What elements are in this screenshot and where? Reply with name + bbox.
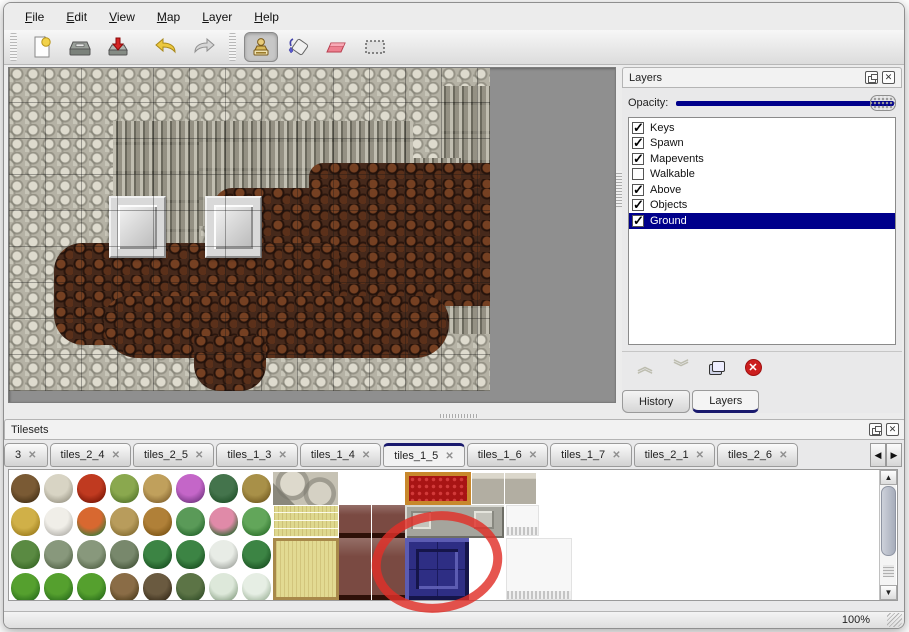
scroll-down-icon[interactable]: ▼ <box>880 585 897 600</box>
save-button[interactable] <box>101 32 135 62</box>
tilesets-panel-title: Tilesets <box>11 424 49 436</box>
select-tool-icon <box>361 35 389 59</box>
sprouts-tile[interactable] <box>9 538 42 571</box>
tilesets-panel-titlebar: Tilesets ✕ <box>4 419 905 440</box>
snow-mound-tile[interactable] <box>42 505 75 538</box>
move-layer-down-button[interactable]: ︾ <box>670 357 692 379</box>
map-grid-overlay <box>9 68 490 391</box>
close-tab-icon[interactable]: ✕ <box>195 450 203 461</box>
layer-row-keys[interactable]: Keys <box>629 120 895 136</box>
stamp-tool-icon <box>249 35 273 59</box>
close-tab-icon[interactable]: ✕ <box>445 451 453 462</box>
dark-tree-tile[interactable] <box>141 571 174 601</box>
layer-row-spawn[interactable]: Spawn <box>629 136 895 152</box>
dry-tuft-tile[interactable] <box>108 505 141 538</box>
layer-name: Walkable <box>650 168 695 180</box>
menu-map[interactable]: Map <box>148 6 189 28</box>
tileset-tab-label: tiles_1_6 <box>478 449 522 461</box>
toolbar <box>4 30 904 65</box>
duplicate-layer-icon <box>709 361 725 375</box>
tileset-tab-tiles_1_3[interactable]: tiles_1_3✕ <box>216 443 297 467</box>
dead-tree-tile[interactable] <box>9 472 42 505</box>
undo-icon <box>153 35 179 59</box>
tileset-tab-tiles_1_4[interactable]: tiles_1_4✕ <box>300 443 381 467</box>
opacity-row: Opacity: <box>628 93 896 113</box>
layer-list: Keys Spawn Mapevents Walkable Above Obje… <box>628 117 896 345</box>
scroll-up-icon[interactable]: ▲ <box>880 470 897 485</box>
white-curtain-tile[interactable] <box>506 538 572 600</box>
twisted-tree-tile[interactable] <box>108 571 141 601</box>
layer-row-mapevents[interactable]: Mapevents <box>629 151 895 167</box>
layer-name: Ground <box>650 215 687 227</box>
close-tab-icon[interactable]: ✕ <box>529 450 537 461</box>
scrollbar-thumb[interactable] <box>881 486 896 556</box>
open-button[interactable] <box>63 32 97 62</box>
layers-panel-titlebar: Layers ✕ <box>622 67 902 88</box>
close-tab-icon[interactable]: ✕ <box>278 450 286 461</box>
menu-help[interactable]: Help <box>245 6 288 28</box>
select-tool-button[interactable] <box>358 32 392 62</box>
close-tab-icon[interactable]: ✕ <box>112 450 120 461</box>
tileset-tab-label: tiles_2_5 <box>144 449 188 461</box>
dry-plant-tile[interactable] <box>240 472 273 505</box>
delete-layer-button[interactable]: ✕ <box>742 357 764 379</box>
resize-grip-icon[interactable] <box>887 613 902 627</box>
tatami-border-tile[interactable] <box>273 538 339 600</box>
undo-button[interactable] <box>149 32 183 62</box>
menu-layer[interactable]: Layer <box>193 6 241 28</box>
menu-bar: File Edit View Map Layer Help <box>4 3 904 30</box>
layer-visibility-checkbox[interactable] <box>632 215 644 227</box>
stamp-tool-button[interactable] <box>244 32 278 62</box>
close-tab-icon[interactable]: ✕ <box>362 450 370 461</box>
white-curtain-tile[interactable] <box>506 505 539 536</box>
tileset-scrollbar[interactable]: ▲ ▼ <box>879 470 896 600</box>
layers-panel-title: Layers <box>629 72 662 84</box>
move-layer-up-icon: ︽ <box>637 363 652 373</box>
layer-visibility-checkbox[interactable] <box>632 153 644 165</box>
status-bar: 100% <box>4 611 904 628</box>
eraser-tool-button[interactable] <box>320 32 354 62</box>
close-tab-icon[interactable]: ✕ <box>28 450 36 461</box>
tileset-view[interactable]: ▲ ▼ <box>8 469 898 601</box>
layer-name: Keys <box>650 122 674 134</box>
purple-bush-tile[interactable] <box>174 472 207 505</box>
tab-layers[interactable]: Layers <box>692 390 759 413</box>
menu-view[interactable]: View <box>100 6 144 28</box>
delete-layer-icon: ✕ <box>745 359 762 376</box>
layer-row-above[interactable]: Above <box>629 182 895 198</box>
layer-visibility-checkbox[interactable] <box>632 137 644 149</box>
tileset-tab-label: tiles_2_1 <box>645 449 689 461</box>
layer-row-walkable[interactable]: Walkable <box>629 167 895 183</box>
layer-visibility-checkbox[interactable] <box>632 168 644 180</box>
tileset-tab-label: 3 <box>15 449 21 461</box>
hay-mound-tile[interactable] <box>9 505 42 538</box>
opacity-slider[interactable] <box>676 95 896 111</box>
layer-visibility-checkbox[interactable] <box>632 122 644 134</box>
gray-bush-tile[interactable] <box>75 538 108 571</box>
open-icon <box>67 35 93 59</box>
gray-bush-tile[interactable] <box>108 538 141 571</box>
palm-tree-tile[interactable] <box>141 538 174 571</box>
menu-edit[interactable]: Edit <box>57 6 96 28</box>
scrollbar-grip <box>883 565 894 577</box>
scattered-leaves-tile[interactable] <box>141 505 174 538</box>
pink-flowers-tile[interactable] <box>207 505 240 538</box>
conifer-tile[interactable] <box>9 571 42 601</box>
tileset-tab-tiles_2_6[interactable]: tiles_2_6✕ <box>717 443 798 467</box>
palm-tree-tile[interactable] <box>240 538 273 571</box>
fill-tool-icon <box>286 35 312 59</box>
conifer-tile[interactable] <box>75 571 108 601</box>
tab-scroll-buttons: ◀ ▶ <box>870 443 902 467</box>
redo-icon <box>191 35 217 59</box>
mossy-tree-tile[interactable] <box>174 571 207 601</box>
move-layer-down-icon: ︾ <box>673 363 688 373</box>
tileset-tab-tiles_2_1[interactable]: tiles_2_1✕ <box>634 443 715 467</box>
layers-panel: Layers ✕ Opacity: Keys Spawn Mapeven <box>622 67 902 413</box>
layer-row-ground[interactable]: Ground <box>629 213 895 229</box>
fill-tool-button[interactable] <box>282 32 316 62</box>
close-panel-icon[interactable]: ✕ <box>886 423 899 436</box>
float-panel-icon[interactable] <box>869 423 882 436</box>
opacity-label: Opacity: <box>628 97 668 109</box>
close-tab-icon[interactable]: ✕ <box>696 450 704 461</box>
lily-pad-cut-tile[interactable] <box>240 505 273 538</box>
close-panel-icon[interactable]: ✕ <box>882 71 895 84</box>
close-tab-icon[interactable]: ✕ <box>779 450 787 461</box>
tileset-tab-label: tiles_1_7 <box>561 449 605 461</box>
redo-button[interactable] <box>187 32 221 62</box>
duplicate-layer-button[interactable] <box>706 357 728 379</box>
menu-file[interactable]: File <box>16 6 53 28</box>
tileset-tab-tiles_2_5[interactable]: tiles_2_5✕ <box>133 443 214 467</box>
tilesets-panel: Tilesets ✕ 3✕tiles_2_4✕tiles_2_5✕tiles_1… <box>4 419 905 615</box>
table-maroon-tile[interactable] <box>339 505 405 538</box>
new-map-button[interactable] <box>25 32 59 62</box>
scroll-tabs-right-button[interactable]: ▶ <box>886 443 902 467</box>
tileset-tab-label: tiles_1_4 <box>311 449 355 461</box>
opacity-slider-handle[interactable] <box>870 95 896 111</box>
new-map-icon <box>30 35 54 59</box>
gray-stone-tile[interactable] <box>471 472 537 505</box>
dock-tabs: History Layers <box>622 387 902 413</box>
green-stump-tile[interactable] <box>108 472 141 505</box>
tileset-tab-label: tiles_1_3 <box>227 449 271 461</box>
layer-name: Spawn <box>650 137 684 149</box>
tileset-tab-bar: 3✕tiles_2_4✕tiles_2_5✕tiles_1_3✕tiles_1_… <box>4 441 872 467</box>
layer-row-objects[interactable]: Objects <box>629 198 895 214</box>
snowy-tree-tile[interactable] <box>207 538 240 571</box>
orange-flowers-tile[interactable] <box>75 505 108 538</box>
tileset-tab-tiles_2_4[interactable]: tiles_2_4✕ <box>50 443 131 467</box>
close-tab-icon[interactable]: ✕ <box>612 450 620 461</box>
fern-tile[interactable] <box>207 472 240 505</box>
white-branch-tile[interactable] <box>42 472 75 505</box>
snow-conifer-tile[interactable] <box>207 571 240 601</box>
tatami-tile[interactable] <box>273 505 339 538</box>
tan-trunk-tile[interactable] <box>141 472 174 505</box>
save-export-icon <box>105 35 131 59</box>
layer-visibility-checkbox[interactable] <box>632 199 644 211</box>
tileset-tab-label: tiles_2_6 <box>728 449 772 461</box>
tileset-tab-label: tiles_2_4 <box>61 449 105 461</box>
zoom-level: 100% <box>842 614 870 626</box>
move-layer-up-button[interactable]: ︽ <box>634 357 656 379</box>
stone-cobble-tile[interactable] <box>273 472 339 505</box>
table-maroon-tile[interactable] <box>339 538 405 600</box>
toolbar-grip[interactable] <box>10 33 17 61</box>
layer-name: Mapevents <box>650 153 704 165</box>
tileset-tab-tiles_1_6[interactable]: tiles_1_6✕ <box>467 443 548 467</box>
lily-pad-tile[interactable] <box>174 505 207 538</box>
map-ground-texture <box>9 68 490 391</box>
blue-selected-tile[interactable] <box>405 538 469 600</box>
opacity-slider-track <box>676 101 894 106</box>
red-flower-tile[interactable] <box>75 472 108 505</box>
palm-tree-tile[interactable] <box>174 538 207 571</box>
toolbar-grip[interactable] <box>229 33 236 61</box>
table-top-tile[interactable] <box>339 472 405 505</box>
scroll-tabs-left-button[interactable]: ◀ <box>870 443 886 467</box>
tileset-tab-label: tiles_1_5 <box>394 450 438 462</box>
float-panel-icon[interactable] <box>865 71 878 84</box>
metal-bracket-tile[interactable] <box>405 505 504 538</box>
tileset-tab-tiles_1_5[interactable]: tiles_1_5✕ <box>383 443 464 467</box>
tab-history[interactable]: History <box>622 390 690 413</box>
red-carpet-tile[interactable] <box>405 472 471 505</box>
eraser-tool-icon <box>323 35 351 59</box>
layer-visibility-checkbox[interactable] <box>632 184 644 196</box>
layer-name: Above <box>650 184 681 196</box>
app-window: File Edit View Map Layer Help <box>3 2 905 629</box>
tileset-tab-3[interactable]: 3✕ <box>4 443 48 467</box>
gray-bush-tile[interactable] <box>42 538 75 571</box>
layer-name: Objects <box>650 199 687 211</box>
conifer-tile[interactable] <box>42 571 75 601</box>
tileset-tab-tiles_1_7[interactable]: tiles_1_7✕ <box>550 443 631 467</box>
snow-conifer-tile[interactable] <box>240 571 273 601</box>
layer-actions-toolbar: ︽ ︾ ✕ <box>622 351 902 383</box>
map-canvas[interactable] <box>8 67 616 403</box>
